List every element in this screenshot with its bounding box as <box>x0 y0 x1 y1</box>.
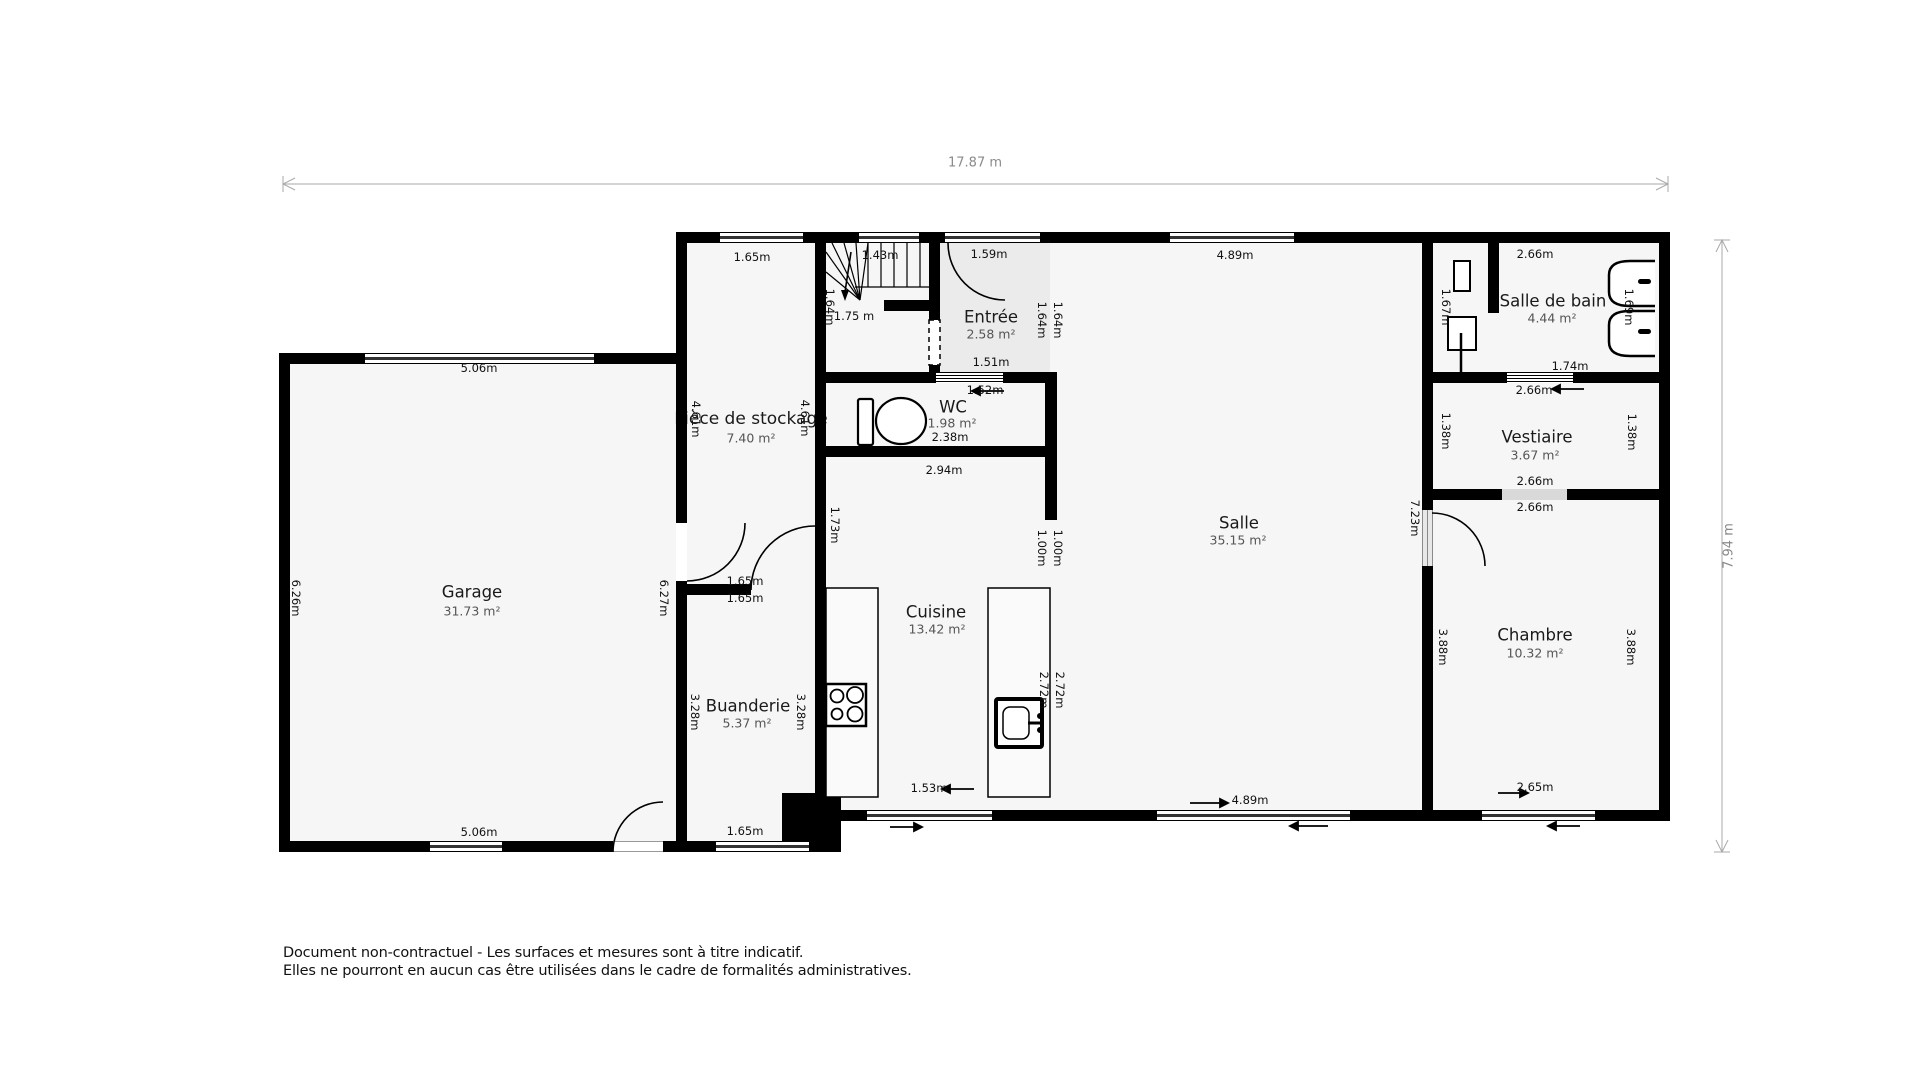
room-label-salle: Salle <box>1219 514 1259 533</box>
dim-stairs-bottom: 1.75 m <box>834 309 874 323</box>
dim-sdb-left: 1.67m <box>1439 289 1453 326</box>
dim-stockage-top: 1.65m <box>734 250 771 264</box>
dim-stockage-bottom-b: 1.65m <box>727 591 764 605</box>
dim-overall-width: 17.87 m <box>948 156 1002 171</box>
dim-cuisine-bottom: 1.53m <box>911 781 948 795</box>
dim-salle-top: 4.89m <box>1217 248 1254 262</box>
sink-drain <box>1638 329 1651 334</box>
room-label-buanderie: Buanderie <box>706 697 791 716</box>
sink-icon <box>996 699 1043 747</box>
dim-counter-right-a: 2.72m <box>1037 672 1051 709</box>
room-area-cuisine: 13.42 m² <box>909 622 966 637</box>
room-area-entree: 2.58 m² <box>967 327 1016 342</box>
room-label-cuisine: Cuisine <box>906 603 966 622</box>
dim-chambre-right: 3.88m <box>1624 629 1638 666</box>
room-area-vestiaire: 3.67 m² <box>1511 448 1560 463</box>
sink-drain <box>1638 279 1651 284</box>
disclaimer-line2: Elles ne pourront en aucun cas être util… <box>283 962 912 980</box>
dim-vest-bottom: 2.66m <box>1517 474 1554 488</box>
dim-entree-right-a: 1.64m <box>1035 302 1049 339</box>
dim-sdb-top: 2.66m <box>1517 247 1554 261</box>
room-area-garage: 31.73 m² <box>444 604 501 619</box>
dim-sdb-bottom: 1.74m <box>1552 359 1589 373</box>
stairs-direction-arrow <box>841 252 851 301</box>
room-area-buanderie: 5.37 m² <box>723 716 772 731</box>
dim-counter-right-b: 2.72m <box>1053 672 1067 709</box>
dim-passage-a: 1.00m <box>1035 530 1049 567</box>
dim-overall-height: 7.94 m <box>1722 523 1737 569</box>
room-label-wc: WC <box>939 398 967 417</box>
room-area-salle: 35.15 m² <box>1210 533 1267 548</box>
room-label-entree: Entrée <box>964 308 1018 327</box>
dim-entree-bottom: 1.51m <box>973 355 1010 369</box>
dim-chambre-bottom: 2.65m <box>1517 780 1554 794</box>
dim-buanderie-right: 3.28m <box>794 694 808 731</box>
dim-garage-right: 6.27m <box>657 580 671 617</box>
dim-cuisine-wall: 1.73m <box>828 507 842 544</box>
room-area-wc: 1.98 m² <box>928 416 977 431</box>
room-label-sdb: Salle de bain <box>1500 292 1607 311</box>
dim-wc-top: 1.52m <box>967 383 1004 397</box>
dim-stockage-left: 4.61m <box>689 401 703 438</box>
dim-entree-right-b: 1.64m <box>1051 302 1065 339</box>
dim-salle-right: 7.23m <box>1408 500 1422 537</box>
dim-stockage-right: 4.61m <box>798 400 812 437</box>
dim-garage-left: 6.26m <box>289 580 303 617</box>
room-label-chambre: Chambre <box>1497 626 1572 645</box>
dim-sdb-sink: 1.69m <box>1622 289 1636 326</box>
disclaimer-line1: Document non-contractuel - Les surfaces … <box>283 944 912 962</box>
toilet-icon <box>858 398 926 445</box>
dim-vest-right: 1.38m <box>1625 414 1639 451</box>
floor-plan-page: Pièce de stockage <box>0 0 1920 1080</box>
dim-stairs-top: 1.43m <box>862 248 899 262</box>
dim-sdb-below: 2.66m <box>1516 383 1553 397</box>
dim-vest-left: 1.38m <box>1439 413 1453 450</box>
dim-wc-width: 2.38m <box>932 430 969 444</box>
dim-salle-bottom: 4.89m <box>1232 793 1269 807</box>
dim-chambre-left: 3.88m <box>1436 629 1450 666</box>
dim-buanderie-bottom: 1.65m <box>727 824 764 838</box>
room-label-garage: Garage <box>442 583 502 602</box>
room-area-chambre: 10.32 m² <box>1507 646 1564 661</box>
dashed-door <box>929 320 940 365</box>
room-area-sdb: 4.44 m² <box>1528 311 1577 326</box>
room-area-stockage: 7.40 m² <box>727 431 776 446</box>
dim-entree-top: 1.59m <box>971 247 1008 261</box>
dim-passage-b: 1.00m <box>1051 530 1065 567</box>
dim-stockage-bottom-a: 1.65m <box>727 574 764 588</box>
dim-stairs-side: 1.64m <box>823 289 837 326</box>
room-label-vestiaire: Vestiaire <box>1501 428 1572 447</box>
disclaimer: Document non-contractuel - Les surfaces … <box>283 944 912 980</box>
dim-garage-top: 5.06m <box>461 361 498 375</box>
dim-below-wc: 2.94m <box>926 463 963 477</box>
dim-garage-bottom: 5.06m <box>461 825 498 839</box>
dim-buanderie-left: 3.28m <box>688 694 702 731</box>
cooktop-icon <box>826 684 866 726</box>
dim-chambre-top: 2.66m <box>1517 500 1554 514</box>
